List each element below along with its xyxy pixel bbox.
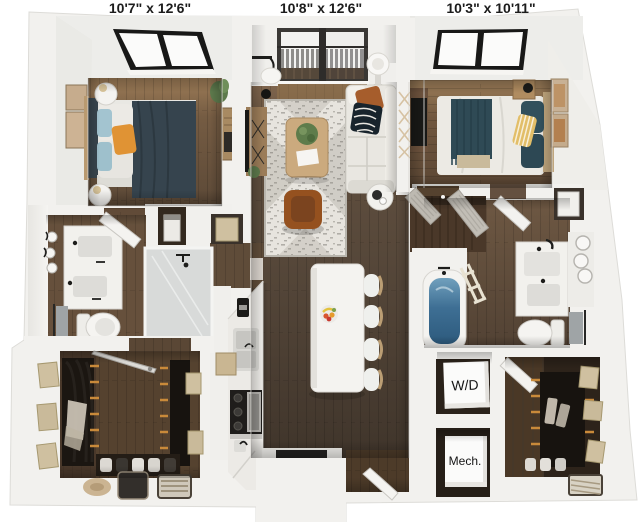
svg-text:Mech.: Mech.: [449, 454, 482, 468]
svg-text:W/D: W/D: [451, 377, 479, 394]
svg-text:10'7" x 12'6": 10'7" x 12'6": [109, 0, 191, 16]
svg-text:10'3" x 10'11": 10'3" x 10'11": [446, 0, 535, 16]
svg-text:10'8" x 12'6": 10'8" x 12'6": [280, 0, 362, 16]
